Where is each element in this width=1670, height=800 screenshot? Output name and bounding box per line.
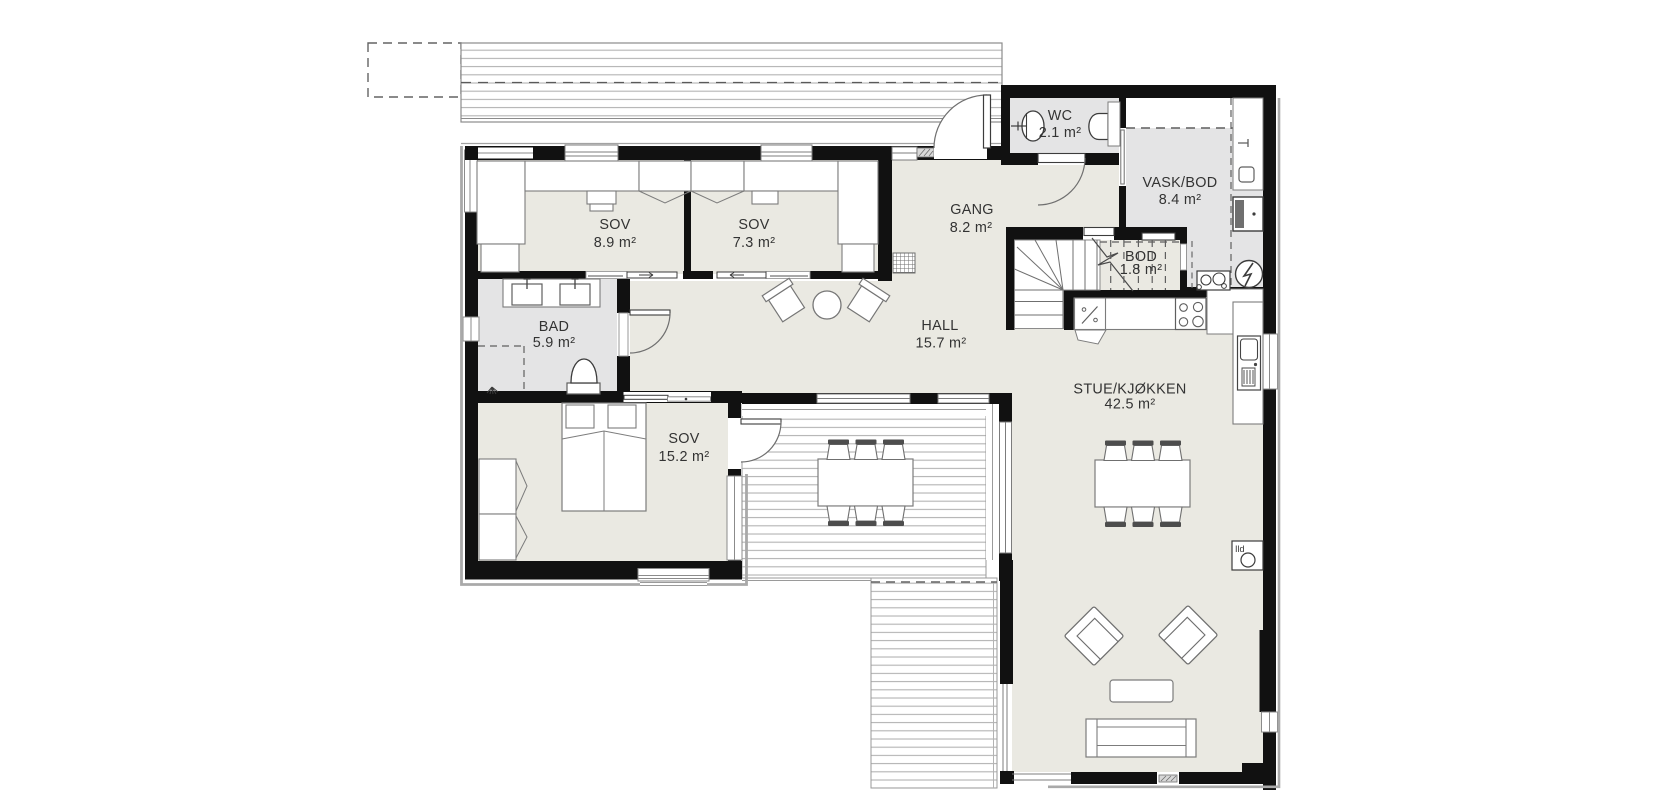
svg-text:GANG: GANG: [950, 202, 994, 218]
svg-text:SOV: SOV: [599, 217, 630, 233]
svg-text:15.7 m²: 15.7 m²: [916, 336, 967, 352]
svg-text:HALL: HALL: [921, 318, 958, 334]
svg-text:15.2 m²: 15.2 m²: [659, 449, 710, 465]
svg-text:42.5 m²: 42.5 m²: [1105, 397, 1156, 413]
svg-text:BAD: BAD: [539, 319, 570, 335]
svg-text:1.8 m²: 1.8 m²: [1120, 262, 1163, 278]
svg-text:SOV: SOV: [668, 431, 699, 447]
svg-text:8.4 m²: 8.4 m²: [1159, 192, 1202, 208]
svg-text:8.9 m²: 8.9 m²: [594, 235, 637, 251]
svg-text:VASK/BOD: VASK/BOD: [1143, 175, 1218, 191]
svg-text:SOV: SOV: [738, 217, 769, 233]
svg-text:Ild: Ild: [1235, 544, 1245, 554]
svg-text:2.1 m²: 2.1 m²: [1039, 125, 1082, 141]
svg-text:8.2 m²: 8.2 m²: [950, 220, 993, 236]
svg-text:STUE/KJØKKEN: STUE/KJØKKEN: [1073, 382, 1186, 398]
svg-text:WC: WC: [1048, 108, 1073, 124]
svg-text:5.9 m²: 5.9 m²: [533, 335, 576, 351]
svg-text:7.3 m²: 7.3 m²: [733, 235, 776, 251]
